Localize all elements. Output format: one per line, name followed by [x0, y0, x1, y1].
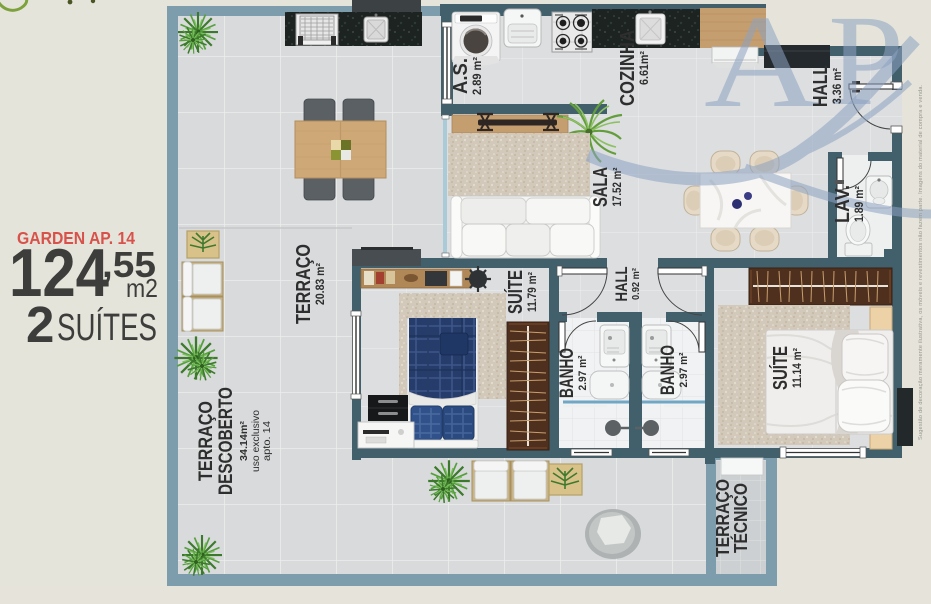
- svg-text:2.89 m²: 2.89 m²: [472, 57, 484, 95]
- svg-text:2: 2: [26, 296, 54, 353]
- svg-text:TERRAÇO: TERRAÇO: [713, 479, 733, 557]
- svg-text:LAV.: LAV.: [832, 185, 854, 223]
- svg-text:124: 124: [9, 235, 109, 311]
- svg-text:17.52 m²: 17.52 m²: [612, 167, 624, 206]
- svg-text:SUÍTE: SUÍTE: [769, 346, 792, 390]
- svg-text:DESCOBERTO: DESCOBERTO: [216, 387, 237, 495]
- svg-text:11.14 m²: 11.14 m²: [792, 348, 804, 388]
- svg-text:m2: m2: [126, 273, 158, 303]
- svg-text:BANHO: BANHO: [557, 348, 578, 398]
- svg-text:COZINHA: COZINHA: [617, 30, 639, 106]
- svg-text:6.61m²: 6.61m²: [639, 51, 651, 85]
- svg-text:3.36 m²: 3.36 m²: [832, 68, 844, 104]
- svg-text:2.97 m²: 2.97 m²: [577, 355, 589, 390]
- svg-text:BANHO: BANHO: [658, 345, 679, 395]
- svg-text:A: A: [704, 0, 820, 135]
- svg-text:SUÍTES: SUÍTES: [57, 306, 157, 349]
- svg-text:HALL: HALL: [612, 267, 631, 302]
- svg-text:HALL: HALL: [810, 65, 832, 107]
- svg-text:SUÍTE: SUÍTE: [504, 270, 527, 314]
- svg-text:SALA: SALA: [590, 167, 612, 207]
- svg-text:0.92 m²: 0.92 m²: [630, 268, 642, 300]
- svg-text:11.79 m²: 11.79 m²: [527, 272, 539, 312]
- svg-text:2.97 m²: 2.97 m²: [678, 352, 690, 387]
- svg-text:apto. 14: apto. 14: [261, 421, 273, 461]
- svg-text:A.S.: A.S.: [450, 58, 472, 94]
- svg-text:TERRAÇO: TERRAÇO: [293, 244, 315, 324]
- svg-text:TERRAÇO: TERRAÇO: [196, 401, 217, 481]
- svg-text:TÉCNICO: TÉCNICO: [730, 483, 751, 553]
- svg-text:34.14m²: 34.14m²: [238, 420, 250, 461]
- svg-text:20.83 m²: 20.83 m²: [315, 263, 327, 305]
- svg-text:Sugestão de decoração merament: Sugestão de decoração meramente ilustrat…: [918, 84, 924, 440]
- svg-text:1.89 m²: 1.89 m²: [854, 186, 866, 222]
